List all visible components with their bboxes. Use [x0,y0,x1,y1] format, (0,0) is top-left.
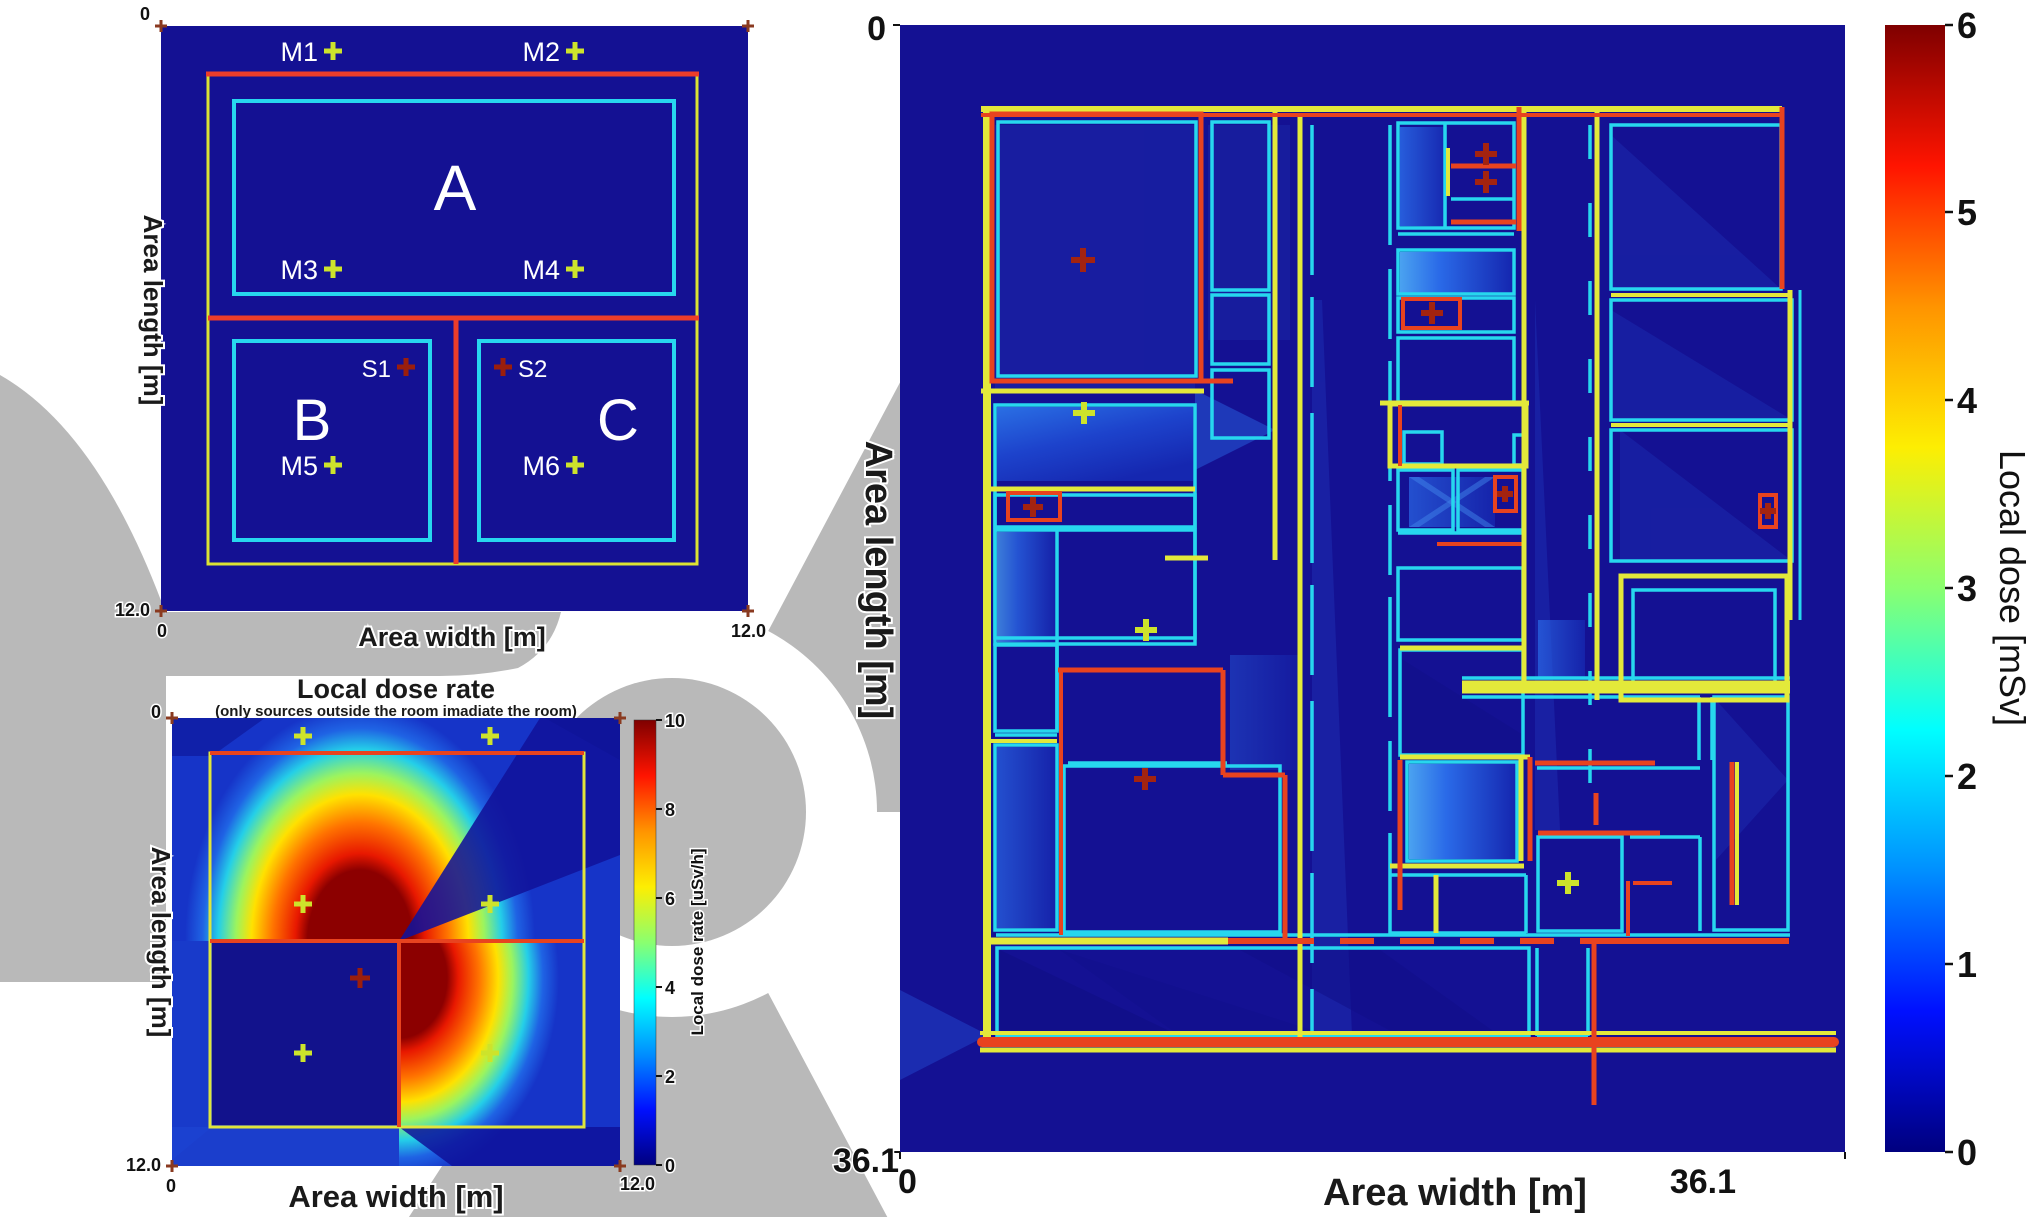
svg-text:0: 0 [157,621,167,641]
svg-text:10: 10 [665,711,685,731]
svg-text:2: 2 [665,1067,675,1087]
svg-text:C: C [597,388,639,453]
svg-text:B: B [293,388,332,453]
svg-text:12.0: 12.0 [126,1155,161,1175]
svg-text:4: 4 [1957,380,1977,421]
svg-text:M2: M2 [522,37,560,67]
svg-text:0: 0 [1957,1132,1977,1173]
svg-text:12.0: 12.0 [620,1174,655,1194]
svg-text:S1: S1 [362,356,391,383]
svg-text:Local dose rate [uSv/h]: Local dose rate [uSv/h] [688,848,707,1035]
svg-text:A: A [434,152,477,224]
svg-text:3: 3 [1957,568,1977,609]
svg-text:Local dose rate: Local dose rate [297,674,495,704]
svg-text:12.0: 12.0 [115,600,150,620]
svg-text:M1: M1 [280,37,318,67]
svg-text:36.1: 36.1 [1670,1163,1736,1201]
svg-text:0: 0 [665,1156,675,1176]
svg-text:6: 6 [1957,5,1977,46]
svg-text:Area length [m]: Area length [m] [146,847,176,1038]
svg-text:0: 0 [898,1163,917,1201]
svg-text:M6: M6 [522,451,560,481]
svg-text:1: 1 [1957,944,1977,985]
svg-text:12.0: 12.0 [731,621,766,641]
svg-text:M3: M3 [280,255,318,285]
svg-text:(only sources outside the room: (only sources outside the room imadiate … [215,703,577,720]
svg-text:Area width [m]: Area width [m] [1323,1172,1587,1214]
svg-text:0: 0 [151,702,161,722]
svg-text:8: 8 [665,800,675,820]
svg-text:6: 6 [665,889,675,909]
svg-text:0: 0 [166,1176,176,1196]
svg-text:5: 5 [1957,192,1977,233]
svg-text:Local dose [mSv]: Local dose [mSv] [1992,450,2029,726]
svg-text:S2: S2 [518,356,547,383]
svg-text:Area width [m]: Area width [m] [358,622,546,652]
svg-text:Area length [m]: Area length [m] [857,441,899,720]
svg-text:Area width [m]: Area width [m] [288,1179,503,1214]
svg-text:0: 0 [867,10,886,48]
svg-text:36.1: 36.1 [833,1142,899,1180]
svg-text:M4: M4 [522,255,560,285]
svg-text:2: 2 [1957,756,1977,797]
svg-text:M5: M5 [280,451,318,481]
svg-text:4: 4 [665,978,675,998]
svg-text:0: 0 [140,4,150,24]
svg-text:Area length [m]: Area length [m] [138,215,168,406]
